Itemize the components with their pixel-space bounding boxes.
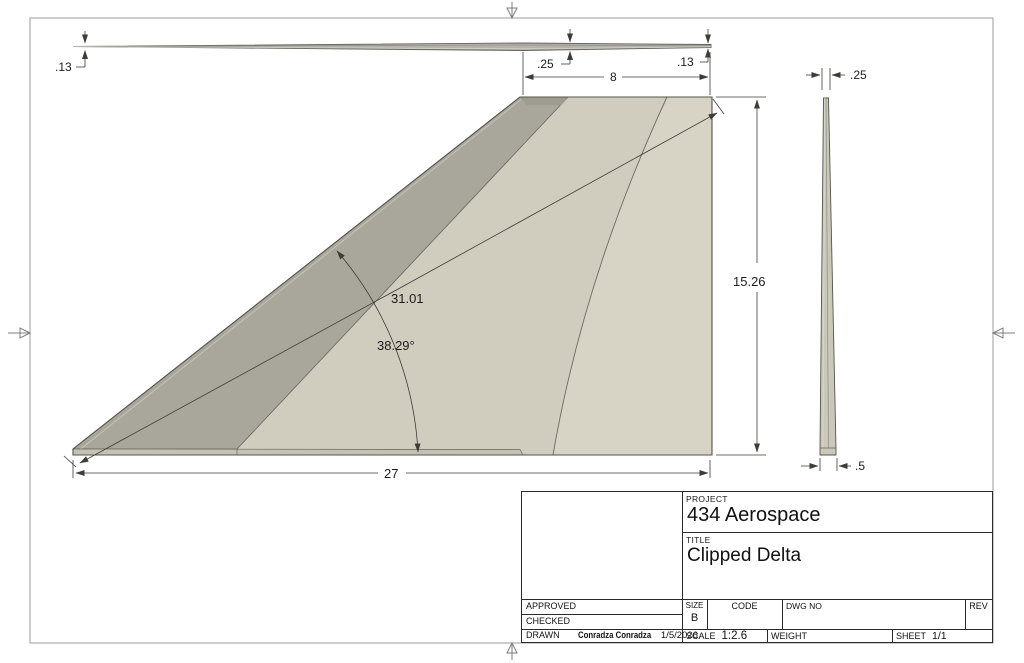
dwg-no-cell: DWG NO [782, 599, 965, 629]
title-label: TITLE [682, 533, 992, 545]
size-cell: SIZE B [682, 599, 707, 629]
weight-cell: WEIGHT [767, 629, 892, 642]
scale-cell: SCALE 1:2.6 [682, 629, 767, 642]
approved-label: APPROVED [522, 599, 686, 614]
dim-side-thickness-top: .25 [850, 68, 867, 82]
code-label: CODE [707, 601, 782, 611]
size-value: B [682, 610, 707, 624]
drawn-row: DRAWN Conradza Conradza 1/5/2026 [522, 629, 682, 642]
scale-label: SCALE [686, 631, 716, 641]
top-view-outline [73, 43, 711, 51]
sheet-label: SHEET [896, 631, 926, 641]
dim-sweep-angle: 38.29° [377, 338, 415, 353]
weight-label: WEIGHT [771, 631, 807, 641]
project-cell: PROJECT 434 Aerospace [682, 492, 992, 532]
center-mark-right-icon [993, 328, 1015, 338]
dim-diagonal: 31.01 [391, 291, 424, 306]
sheet-cell: SHEET 1/1 [892, 629, 992, 642]
front-view [73, 97, 712, 455]
dim-side-thickness-bottom: .5 [855, 459, 865, 473]
sheet-value: 1/1 [932, 630, 947, 642]
center-mark-left-icon [8, 328, 30, 338]
drawn-label: DRAWN [522, 628, 560, 643]
dim-span: 27 [384, 466, 398, 481]
apex-chamfer-strip [520, 97, 568, 105]
dim-height: 15.26 [733, 274, 766, 289]
size-label: SIZE [682, 599, 707, 610]
rev-cell: REV [965, 599, 992, 629]
project-label: PROJECT [682, 492, 992, 504]
top-view-dimensions [76, 29, 710, 95]
bottom-edge-strip [73, 449, 523, 455]
dim-top-thickness-mid: .25 [537, 57, 554, 71]
side-view [820, 98, 836, 455]
top-view [73, 43, 711, 51]
project-value: 434 Aerospace [682, 504, 992, 526]
checked-label: CHECKED [522, 614, 686, 629]
center-mark-bottom-icon [507, 643, 517, 660]
dwg-no-label: DWG NO [782, 599, 965, 611]
dim-top-chord: 8 [610, 70, 617, 84]
dim-top-thickness-left: .13 [55, 60, 72, 74]
title-block: PROJECT 434 Aerospace TITLE Clipped Delt… [521, 491, 993, 643]
drawn-by: Conradza Conradza [578, 630, 651, 641]
scale-value: 1:2.6 [722, 630, 748, 642]
code-cell: CODE [707, 599, 782, 629]
dim-top-thickness-right: .13 [677, 55, 694, 69]
rev-label: REV [965, 601, 992, 611]
title-value: Clipped Delta [682, 545, 992, 566]
center-mark-top-icon [507, 2, 517, 18]
title-cell: TITLE Clipped Delta [682, 533, 992, 599]
drawing-sheet: .13 .25 .13 8 [0, 0, 1024, 663]
